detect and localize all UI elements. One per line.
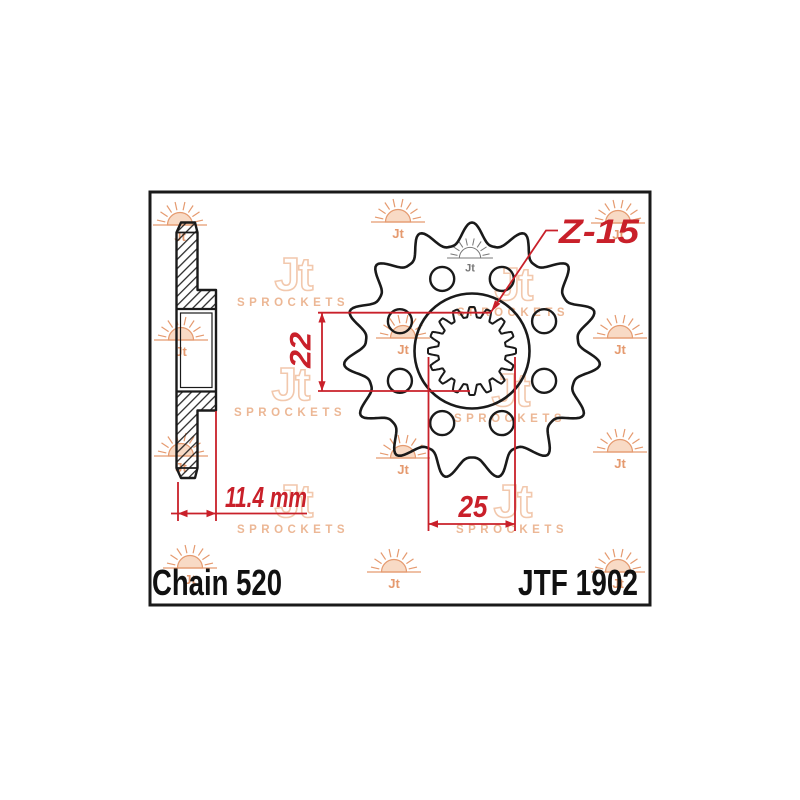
- dimension-22-value: 22: [285, 332, 318, 369]
- jt-logo-subtitle: SPROCKETS: [237, 297, 349, 309]
- jt-monogram: Jt: [392, 226, 404, 241]
- jt-monogram: Jt: [397, 462, 409, 477]
- jt-logo-subtitle: SPROCKETS: [456, 524, 568, 536]
- sprocket-technical-drawing: JtJtJtJtJtJtJtJtJtJtJtJtJtSPROCKETSJtSPR…: [0, 0, 800, 800]
- z15-label-text: Z-15: [558, 213, 640, 251]
- jt-monogram: Jt: [614, 342, 626, 357]
- jt-logo-letters: Jt: [494, 475, 533, 527]
- jt-monogram: Jt: [465, 263, 475, 275]
- page-background: [0, 0, 800, 800]
- jt-monogram: Jt: [388, 576, 400, 591]
- jt-monogram: Jt: [397, 342, 409, 357]
- jt-monogram: Jt: [614, 456, 626, 471]
- dimension-11-4-value: 11.4 mm: [225, 482, 307, 514]
- jt-logo-subtitle: SPROCKETS: [234, 407, 346, 419]
- dimension-25-value: 25: [458, 489, 488, 524]
- jt-logo-letters: Jt: [275, 248, 314, 300]
- jt-logo-subtitle: SPROCKETS: [237, 524, 349, 536]
- part-number-label: JTF 1902: [518, 562, 638, 603]
- chain-size-label: Chain 520: [152, 562, 282, 603]
